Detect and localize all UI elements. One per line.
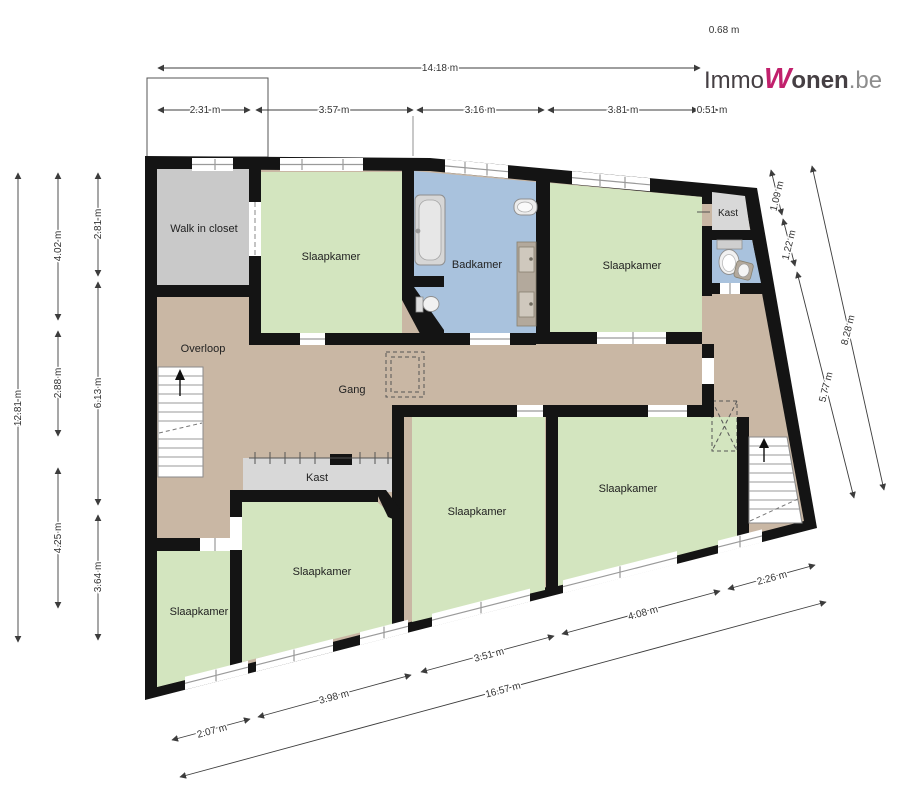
label-slaapkamer-bottom-middle: Slaapkamer — [448, 506, 507, 518]
label-overloop: Overloop — [181, 343, 226, 355]
dim-left-a-0: 4.02 m — [53, 231, 64, 262]
label-slaapkamer-top-right: Slaapkamer — [603, 260, 662, 272]
dim-bottom-4: 2.26 m — [756, 569, 788, 588]
dim-right-2: 5.77 m — [817, 371, 835, 403]
bathroom-toilet — [416, 297, 439, 313]
room-slaapkamer-top-right — [550, 183, 702, 332]
dim-left-b-0: 2.81 m — [93, 209, 104, 240]
dim-right-1: 1.22 m — [780, 229, 798, 261]
dim-top-right-offset: 0.68 m — [709, 25, 740, 36]
bathroom-vanity-double-sink — [517, 242, 536, 326]
bathtub — [415, 195, 445, 265]
label-walk-in-closet: Walk in closet — [170, 223, 237, 235]
label-slaapkamer-bottom-left: Slaapkamer — [170, 606, 229, 618]
label-slaapkamer-bottom-right: Slaapkamer — [599, 483, 658, 495]
room-slaapkamer-bottom-left — [157, 551, 230, 687]
dim-right-0: 1.09 m — [768, 180, 786, 212]
dim-left-b-1: 6.13 m — [93, 378, 104, 409]
staircase-left — [158, 367, 203, 477]
floorplan-drawing: Walk in closet Slaapkamer Badkamer Slaap… — [0, 0, 900, 800]
bathroom-sink-small — [514, 199, 537, 215]
label-slaapkamer-top-left: Slaapkamer — [302, 251, 361, 263]
dim-bottom-1: 3.98 m — [318, 688, 350, 707]
logo-onen: onen — [791, 67, 848, 94]
dim-bottom-2: 3.51 m — [473, 646, 505, 665]
logo-immo: Immo — [704, 67, 764, 94]
immowonen-logo: ImmoWonen.be — [704, 63, 882, 95]
wc-sink — [733, 260, 754, 281]
dim-left-total: 12.81 m — [13, 390, 24, 426]
label-gang: Gang — [339, 384, 366, 396]
dim-top-total: 14.18 m — [422, 63, 458, 74]
label-kast-top-right: Kast — [718, 208, 738, 219]
floorplan-page: Walk in closet Slaapkamer Badkamer Slaap… — [0, 0, 900, 800]
dim-top-4: 0.51 m — [697, 105, 728, 116]
label-slaapkamer-bottom-2: Slaapkamer — [293, 566, 352, 578]
dim-bottom-3: 4.08 m — [627, 604, 659, 623]
dim-top-0: 2.31 m — [190, 105, 221, 116]
logo-w: W — [764, 63, 794, 95]
dormer-outline — [147, 78, 268, 157]
dim-left-a-2: 4.25 m — [53, 523, 64, 554]
dim-bottom-0: 2.07 m — [196, 722, 228, 741]
label-badkamer: Badkamer — [452, 259, 502, 271]
label-kast-middle: Kast — [306, 472, 328, 484]
dim-right-outer: 8.28 m — [839, 314, 857, 346]
dim-top-3: 3.81 m — [608, 105, 639, 116]
dim-left-a-1: 2.88 m — [53, 368, 64, 399]
dim-top-2: 3.16 m — [465, 105, 496, 116]
dim-top-1: 3.57 m — [319, 105, 350, 116]
dim-left-b-2: 3.64 m — [93, 562, 104, 593]
dim-bottom-total: 16.57 m — [484, 680, 522, 700]
logo-be: .be — [849, 67, 882, 94]
